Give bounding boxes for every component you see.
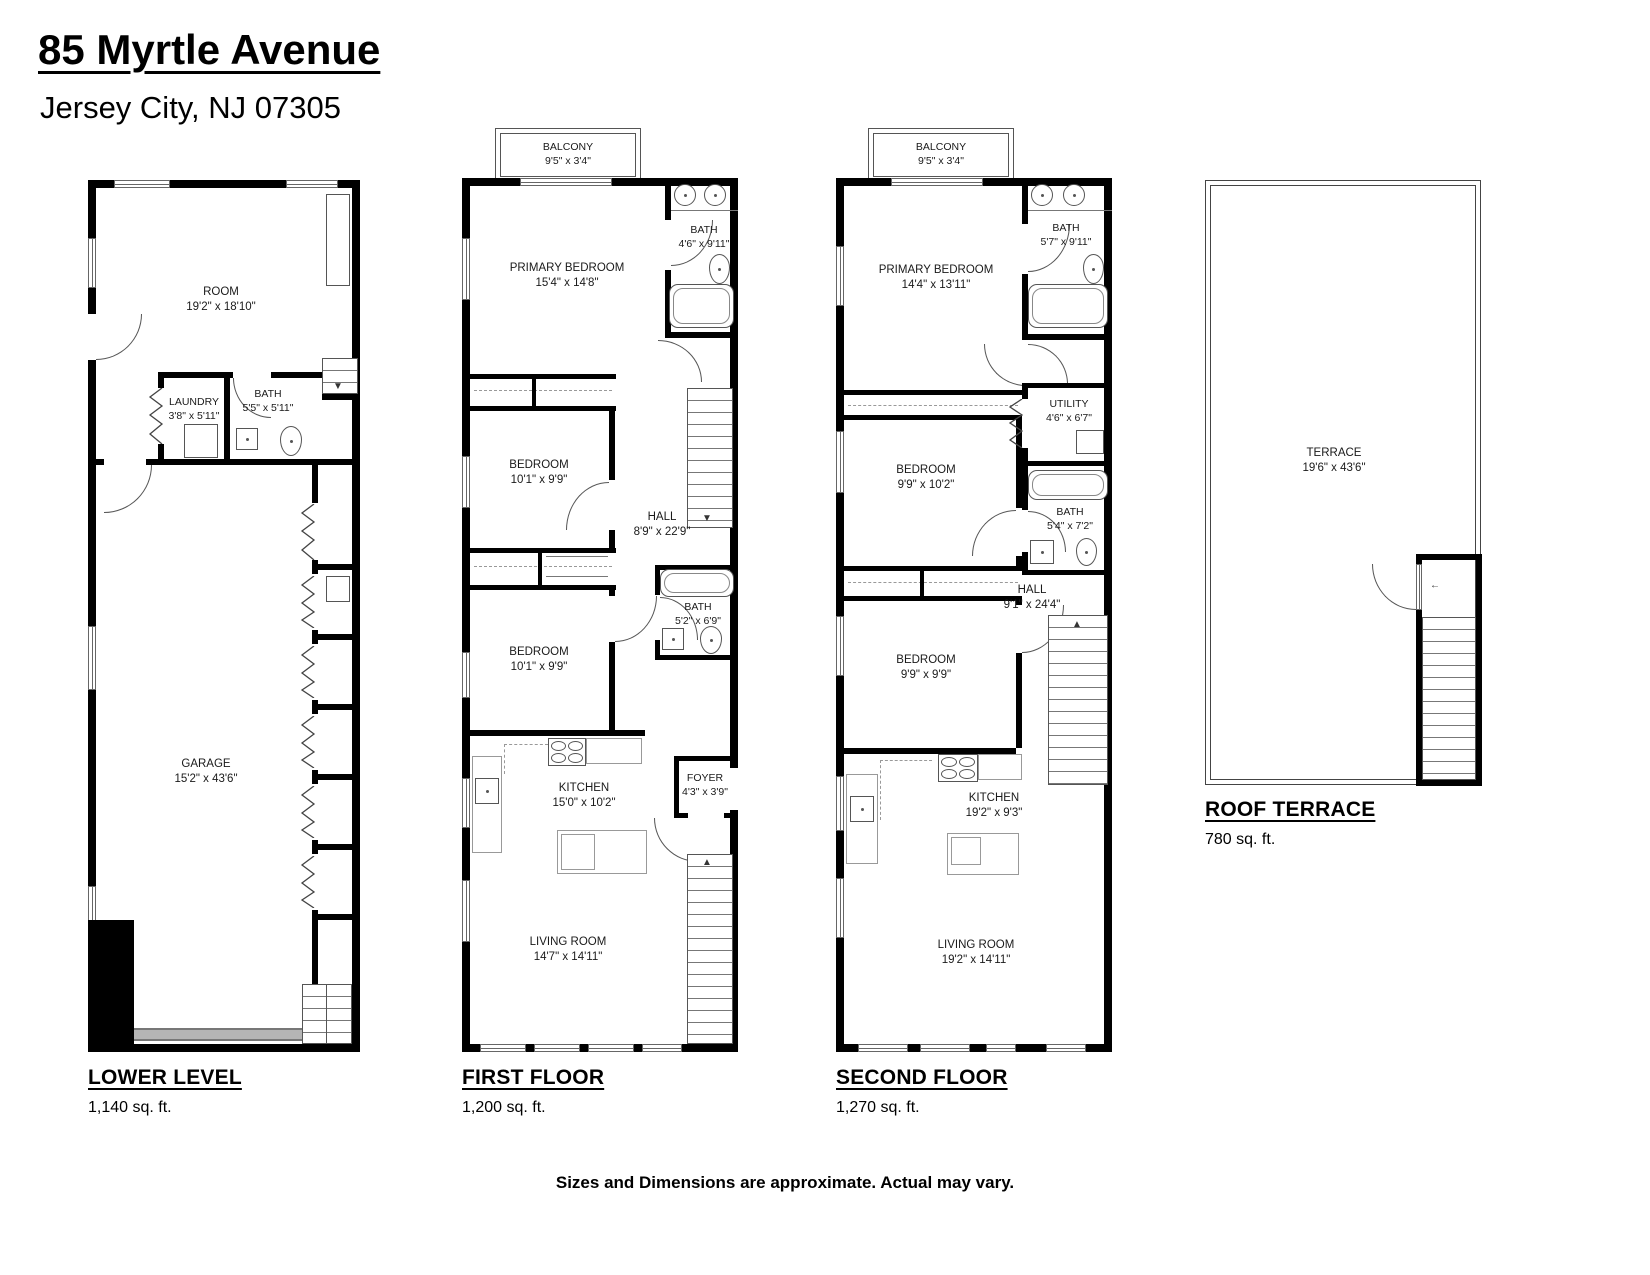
room-dims: 10'1" x 9'9" [509,473,568,488]
wall [1022,178,1028,224]
floor-name: LOWER LEVEL [88,1066,242,1090]
closet-line [474,390,612,391]
first-floor-balcony: BALCONY 9'5" x 3'4" [495,128,641,182]
room-dims: 15'2" x 43'6" [174,772,237,787]
sink [1063,184,1085,206]
wall [470,548,616,553]
room-name: BATH [679,224,730,238]
room-dims: 19'2" x 18'10" [186,300,255,315]
room-label-bedroom: BEDROOM 10'1" x 9'9" [509,458,568,488]
closet-line [474,566,612,567]
room-label-kitchen: KITCHEN 15'0" x 10'2" [552,781,615,811]
room-label-hall: HALL 9'1" x 24'4" [1004,583,1061,613]
window [642,1044,682,1052]
floor-sqft: 1,200 sq. ft. [462,1099,604,1117]
room-label-garage: GARAGE 15'2" x 43'6" [174,757,237,787]
room-name: BALCONY [916,141,966,155]
wall [844,415,1022,420]
counter [978,754,1022,780]
door-arc [566,482,609,530]
room-label-room: ROOM 19'2" x 18'10" [186,285,255,315]
wall [322,394,358,400]
stairs-arrow-icon: ← [1430,581,1440,591]
counter-dash-line [504,744,505,774]
room-dims: 19'2" x 9'3" [966,806,1023,821]
wall [158,372,233,378]
room-dims: 9'5" x 3'4" [543,155,593,169]
sink [850,796,874,822]
wall [470,374,616,379]
room-name: BEDROOM [896,463,955,478]
window [836,776,844,831]
room-name: KITCHEN [966,791,1023,806]
wall [674,756,679,818]
room-name: TERRACE [1302,446,1365,461]
floorplan-sheet: 85 Myrtle Avenue Jersey City, NJ 07305 ▼ [0,0,1650,1275]
wall [470,406,616,411]
bifold-door-icon [300,786,316,838]
window [88,238,96,288]
closet-door [546,556,608,557]
stairs-arrow-icon: ▼ [702,514,712,524]
toilet [700,626,722,654]
first-floor-caption: FIRST FLOOR 1,200 sq. ft. [462,1066,604,1117]
room-dims: 3'8" x 5'11" [169,410,220,424]
window [462,238,470,300]
wall [1016,653,1022,748]
stairs [687,388,733,528]
floor-sqft: 1,140 sq. ft. [88,1099,242,1117]
room-name: FOYER [682,772,728,786]
wall [609,642,615,730]
room-dims: 14'7" x 14'11" [530,950,607,965]
wall [470,585,616,590]
wall [655,640,660,660]
wall [1022,383,1112,388]
window [462,456,470,508]
room-dims: 4'6" x 6'7" [1046,412,1092,426]
wall [312,914,352,920]
floor-sqft: 1,270 sq. ft. [836,1099,1008,1117]
window [836,246,844,306]
wall [312,704,352,710]
room-name: BEDROOM [509,645,568,660]
second-floor-floorplan: BATH 5'7" x 9'11" PRIMARY BEDROOM 14'4" … [836,178,1112,1052]
wall [655,655,738,660]
toilet [709,254,730,284]
wall [312,774,352,780]
wall [1022,570,1112,575]
wall [1416,780,1482,786]
wall [312,465,318,503]
door-opening [88,314,96,360]
room-name: BEDROOM [509,458,568,473]
wall [1022,383,1028,399]
washer [184,424,218,458]
room-label-bedroom: BEDROOM 9'9" x 9'9" [896,653,955,683]
closet-line [848,405,1018,406]
stairs [302,984,352,1044]
window [986,1044,1016,1052]
room-name: BATH [1047,506,1093,520]
wall [844,390,1022,395]
counter [586,738,642,764]
counter-dash-line [504,744,548,745]
room-dims: 9'9" x 9'9" [896,668,955,683]
wall [609,530,615,548]
closet-door [546,576,608,577]
room-name: GARAGE [174,757,237,772]
window [836,616,844,676]
room-name: KITCHEN [552,781,615,796]
room-label-laundry: LAUNDRY 3'8" x 5'11" [169,396,220,424]
room-label-living-room: LIVING ROOM 19'2" x 14'11" [938,938,1015,968]
bifold-door-icon [148,388,164,444]
utility-fixture [326,576,350,602]
entry-door-opening [730,768,738,810]
room-dims: 9'9" x 10'2" [896,478,955,493]
stairs-divider [326,984,327,1044]
room-dims: 5'4" x 7'2" [1047,520,1093,534]
water-heater [1076,430,1104,454]
stairs [687,854,733,1044]
door-arc [615,596,657,642]
floor-name: FIRST FLOOR [462,1066,604,1090]
room-dims: 10'1" x 9'9" [509,660,568,675]
sink [1030,540,1054,564]
balcony-sliding-door [520,178,612,186]
door-arc [658,340,702,382]
room-name: LIVING ROOM [530,935,607,950]
window [462,880,470,942]
room-dims: 9'1" x 24'4" [1004,598,1061,613]
wall [665,332,738,338]
bifold-door-icon [300,646,316,698]
room-label-utility: UTILITY 4'6" x 6'7" [1046,398,1092,426]
counter [472,756,502,853]
utility-fixture [326,194,350,286]
wall [1416,554,1482,560]
wall [1022,461,1112,466]
wall [158,378,164,388]
window [462,652,470,698]
bifold-door-icon [300,856,316,908]
wall [312,844,352,850]
lower-level-floorplan: ▼ ROOM 19'2" x 18'10" [88,180,360,1052]
property-city: Jersey City, NJ 07305 [40,90,341,126]
room-label-foyer: FOYER 4'3" x 3'9" [682,772,728,800]
bifold-door-icon [300,716,316,768]
toilet [1076,538,1097,566]
stairs [1048,615,1108,785]
bifold-door-icon [300,576,316,628]
closet-line [848,582,1018,583]
room-label-balcony: BALCONY 9'5" x 3'4" [916,141,966,169]
property-address: 85 Myrtle Avenue [38,26,380,74]
wall [312,564,352,570]
room-name: PRIMARY BEDROOM [879,263,994,278]
wall [844,566,1022,571]
room-dims: 15'0" x 10'2" [552,796,615,811]
room-label-bedroom: BEDROOM 10'1" x 9'9" [509,645,568,675]
room-label-bath: BATH 5'4" x 7'2" [1047,506,1093,534]
room-label-primary-bedroom: PRIMARY BEDROOM 15'4" x 14'8" [510,261,625,291]
door-arc [972,510,1016,556]
window [480,1044,526,1052]
balcony-sliding-door [891,178,983,186]
room-label-bath: BATH 5'5" x 5'11" [243,388,294,416]
wall [312,634,352,640]
wall [674,756,738,761]
door-arc [104,465,152,513]
toilet [280,426,302,456]
floor-name: ROOF TERRACE [1205,798,1375,822]
wall-block [88,920,134,1052]
room-label-terrace: TERRACE 19'6" x 43'6" [1302,446,1365,476]
window [920,1044,970,1052]
door-arc [984,344,1026,386]
vanity-counter [671,210,738,211]
room-name: BEDROOM [896,653,955,668]
sink [662,628,684,650]
sink [674,184,696,206]
window [588,1044,634,1052]
stairs [1422,617,1476,780]
garage-door [134,1028,302,1041]
room-name: LIVING ROOM [938,938,1015,953]
room-dims: 8'9" x 22'9" [634,525,691,540]
counter-dash-line [880,760,881,820]
window [462,778,470,828]
door-arc [1028,344,1068,384]
lower-level-caption: LOWER LEVEL 1,140 sq. ft. [88,1066,242,1117]
wall [352,180,360,1052]
room-label-bedroom: BEDROOM 9'9" x 10'2" [896,463,955,493]
floor-name: SECOND FLOOR [836,1066,1008,1090]
room-dims: 14'4" x 13'11" [879,278,994,293]
window [286,180,338,188]
counter-dash-line [880,760,932,761]
stairs-arrow-icon: ▲ [702,858,712,868]
stairs-arrow-icon: ▲ [1072,620,1082,630]
room-name: UTILITY [1046,398,1092,412]
wall [609,411,615,480]
stairs-arrow-icon: ▼ [333,382,343,392]
kitchen-island-sink [561,834,595,870]
wall [470,730,645,736]
room-label-kitchen: KITCHEN 19'2" x 9'3" [966,791,1023,821]
wall [538,548,542,590]
roof-terrace-caption: ROOF TERRACE 780 sq. ft. [1205,798,1375,849]
window [836,431,844,493]
room-dims: 5'5" x 5'11" [243,402,294,416]
bathtub [1028,470,1108,500]
room-label-bath: BATH 4'6" x 9'11" [679,224,730,252]
stove [938,754,978,782]
wall [844,596,1022,601]
door-opening [1416,564,1422,610]
second-floor-balcony: BALCONY 9'5" x 3'4" [868,128,1014,182]
room-label-bath: BATH 5'2" x 6'9" [675,601,721,629]
kitchen-island-sink [951,837,981,865]
bifold-door-icon [1008,399,1024,448]
room-dims: 15'4" x 14'8" [510,276,625,291]
wall [665,178,671,220]
bathtub [660,569,734,597]
window [1046,1044,1086,1052]
room-dims: 9'5" x 3'4" [916,155,966,169]
wall [224,372,230,465]
room-name: LAUNDRY [169,396,220,410]
sink [475,778,499,804]
room-name: BATH [675,601,721,615]
room-dims: 4'6" x 9'11" [679,238,730,252]
room-dims: 5'7" x 9'11" [1041,236,1092,250]
toilet [1083,254,1104,284]
wall [532,374,536,411]
room-label-hall: HALL 8'9" x 22'9" [634,510,691,540]
wall [1022,334,1112,340]
room-name: BALCONY [543,141,593,155]
sink [1031,184,1053,206]
bathtub [1028,284,1108,328]
window [858,1044,908,1052]
disclaimer-text: Sizes and Dimensions are approximate. Ac… [0,1173,1570,1193]
vanity-counter [1028,210,1112,211]
room-name: HALL [1004,583,1061,598]
room-label-primary-bedroom: PRIMARY BEDROOM 14'4" x 13'11" [879,263,994,293]
room-dims: 19'2" x 14'11" [938,953,1015,968]
room-name: BATH [1041,222,1092,236]
second-floor-caption: SECOND FLOOR 1,270 sq. ft. [836,1066,1008,1117]
sink [236,428,258,450]
room-dims: 4'3" x 3'9" [682,786,728,800]
room-label-balcony: BALCONY 9'5" x 3'4" [543,141,593,169]
room-dims: 19'6" x 43'6" [1302,461,1365,476]
window [88,626,96,690]
wall [920,566,924,601]
room-label-living-room: LIVING ROOM 14'7" x 14'11" [530,935,607,965]
sink [704,184,726,206]
window [836,878,844,938]
bathtub [669,284,734,328]
room-name: PRIMARY BEDROOM [510,261,625,276]
wall [312,910,318,986]
room-name: BATH [243,388,294,402]
door-arc [96,314,142,360]
window [534,1044,580,1052]
first-floor-floorplan: BATH 4'6" x 9'11" PRIMARY BEDROOM 15'4" … [462,178,738,1052]
room-name: HALL [634,510,691,525]
bifold-door-icon [300,504,316,560]
wall [1476,554,1482,786]
window [114,180,170,188]
room-name: ROOM [186,285,255,300]
stove [548,738,586,766]
wall [271,372,322,378]
room-label-bath: BATH 5'7" x 9'11" [1041,222,1092,250]
roof-terrace-floorplan: TERRACE 19'6" x 43'6" ← [1205,180,1481,785]
floor-sqft: 780 sq. ft. [1205,831,1375,849]
